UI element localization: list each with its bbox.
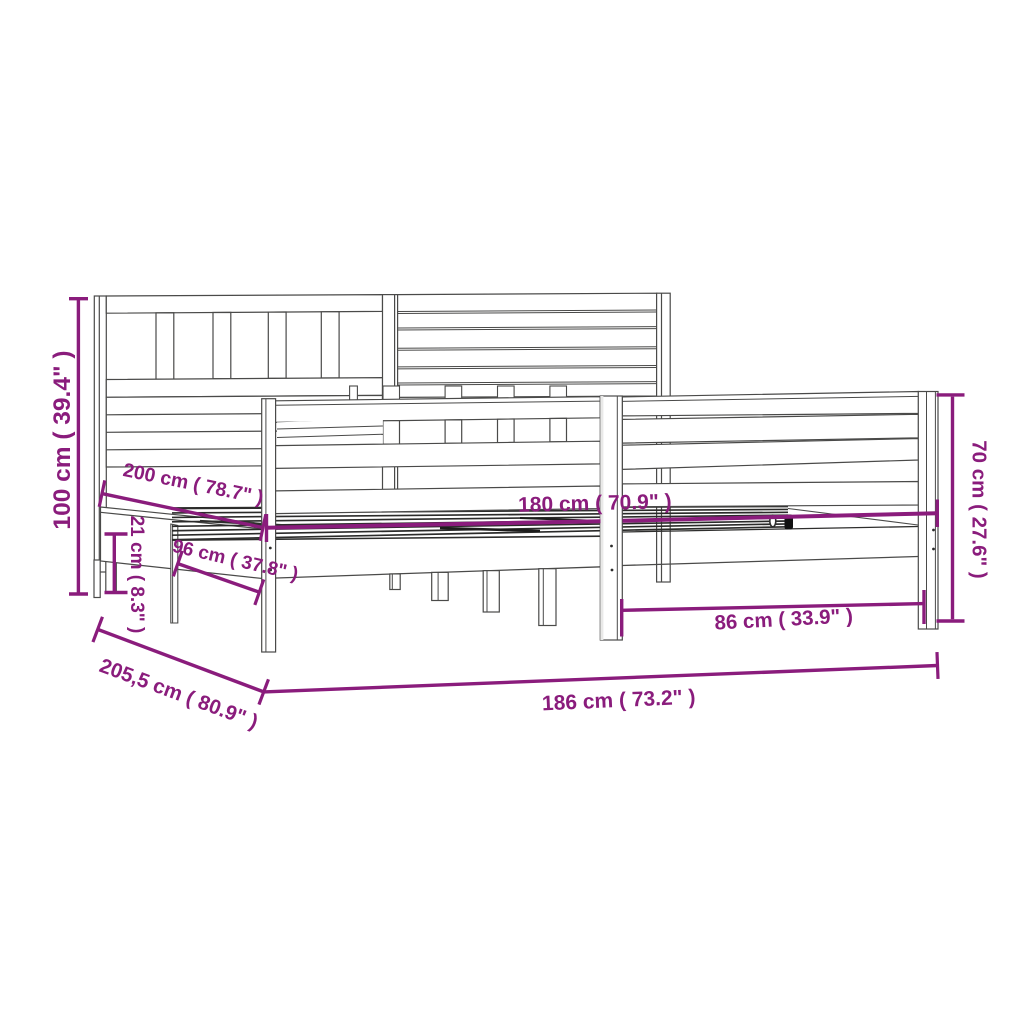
svg-text:180 cm ( 70.9" ): 180 cm ( 70.9" ) bbox=[518, 490, 672, 516]
svg-text:70 cm ( 27.6" ): 70 cm ( 27.6" ) bbox=[968, 440, 991, 579]
svg-text:100 cm ( 39.4" ): 100 cm ( 39.4" ) bbox=[49, 350, 76, 529]
svg-text:21 cm ( 8.3" ): 21 cm ( 8.3" ) bbox=[126, 516, 147, 634]
